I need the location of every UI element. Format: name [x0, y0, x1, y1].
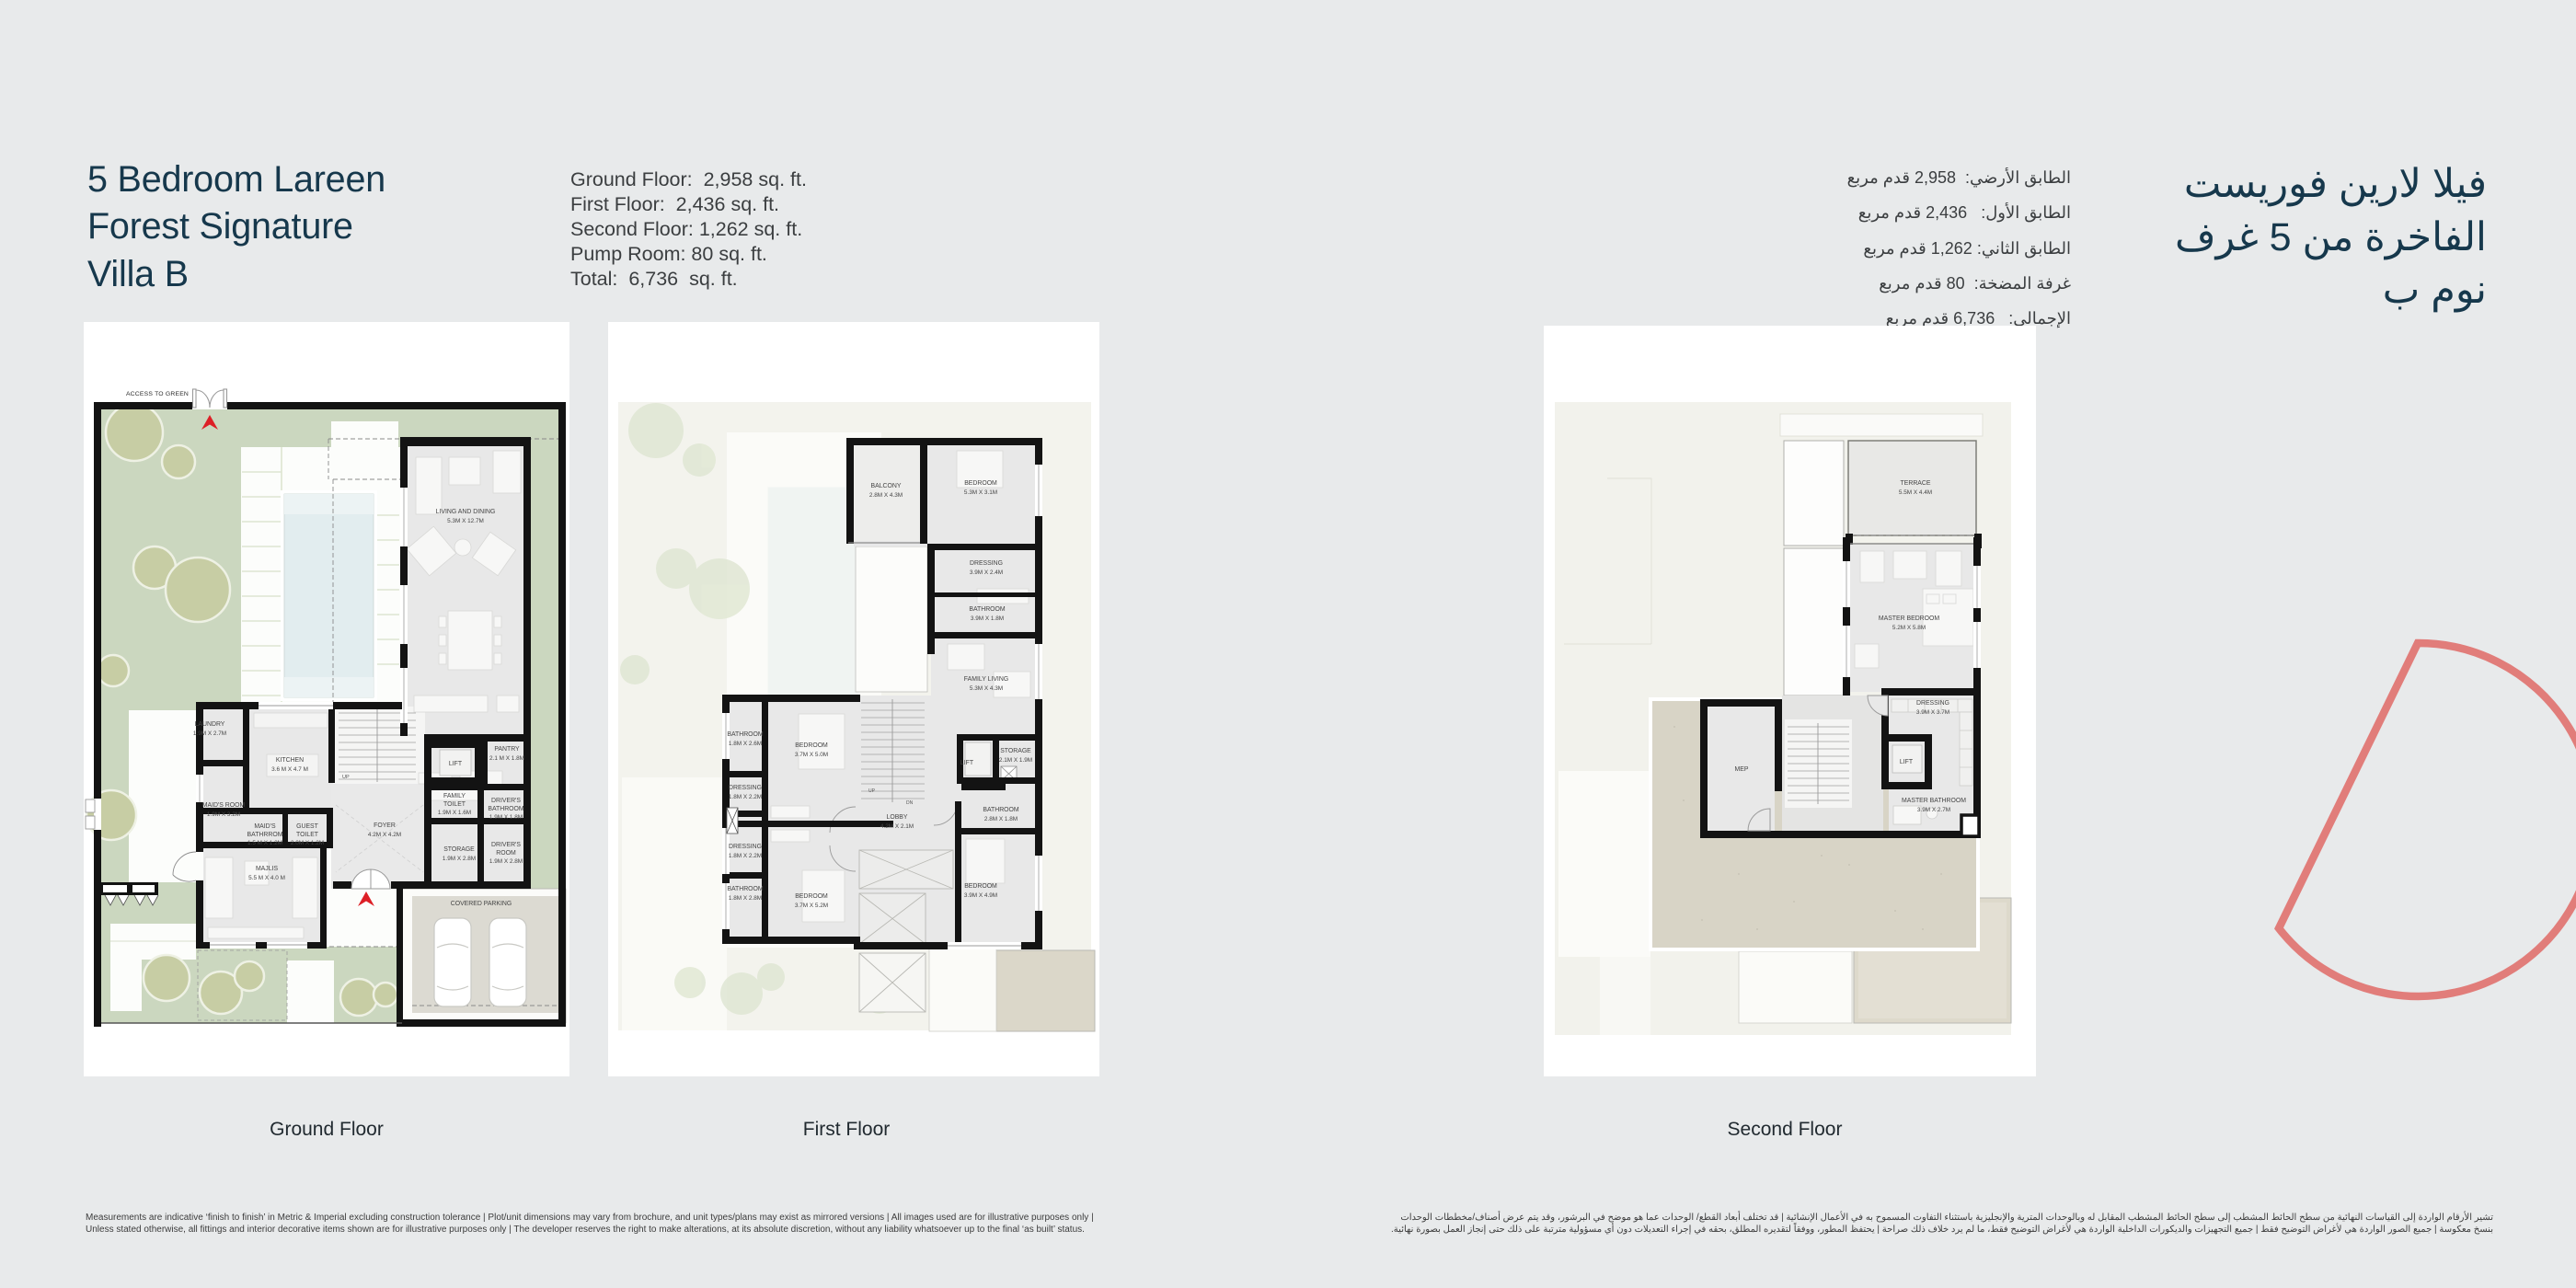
svg-text:LIFT: LIFT: [1900, 759, 1914, 765]
svg-text:GUEST: GUEST: [296, 823, 319, 830]
svg-text:1.9M X 2.8M: 1.9M X 2.8M: [489, 858, 523, 865]
svg-text:BATHROOM: BATHROOM: [969, 606, 1006, 613]
svg-text:DRESSING: DRESSING: [1916, 700, 1949, 707]
svg-text:4.2M X 4.2M: 4.2M X 4.2M: [368, 832, 401, 838]
svg-text:3.9M X 4.9M: 3.9M X 4.9M: [964, 892, 997, 899]
svg-text:DN: DN: [906, 800, 914, 806]
svg-text:DRESSING: DRESSING: [729, 844, 762, 850]
svg-text:1.9M X 1.8M: 1.9M X 1.8M: [489, 814, 523, 821]
svg-text:UP: UP: [342, 775, 350, 780]
svg-text:MAID'S ROOM: MAID'S ROOM: [202, 802, 246, 809]
svg-text:BEDROOM: BEDROOM: [795, 893, 828, 900]
svg-text:MASTER BATHROOM: MASTER BATHROOM: [1902, 798, 1966, 804]
svg-text:COVERED PARKING: COVERED PARKING: [451, 901, 512, 907]
svg-text:4.2M X 2.1M: 4.2M X 2.1M: [880, 823, 914, 830]
svg-text:5.2M X 5.8M: 5.2M X 5.8M: [1892, 625, 1926, 631]
svg-text:PANTRY: PANTRY: [494, 746, 520, 753]
svg-text:5.3M X 4.3M: 5.3M X 4.3M: [970, 685, 1003, 692]
svg-text:FAMILY: FAMILY: [443, 793, 466, 799]
svg-text:TOILET: TOILET: [296, 832, 319, 838]
svg-text:MASTER BEDROOM: MASTER BEDROOM: [1879, 615, 1939, 622]
svg-text:2.8M X 1.8M: 2.8M X 1.8M: [984, 816, 1018, 822]
svg-text:BATHROOM: BATHROOM: [727, 731, 764, 738]
svg-text:3.9M X 1.8M: 3.9M X 1.8M: [971, 615, 1004, 622]
svg-text:LIVING AND DINING: LIVING AND DINING: [436, 509, 496, 515]
svg-text:MAJLIS: MAJLIS: [256, 866, 279, 872]
svg-text:TERRACE: TERRACE: [1901, 480, 1931, 487]
svg-text:KITCHEN: KITCHEN: [276, 757, 304, 764]
svg-text:DRIVER'S: DRIVER'S: [491, 842, 521, 848]
svg-text:MEP: MEP: [1735, 766, 1749, 773]
svg-text:1.9M X 2.7M: 1.9M X 2.7M: [193, 730, 226, 737]
svg-text:1.8M X 2.8M: 1.8M X 2.8M: [729, 895, 762, 902]
svg-text:3.7M X 5.0M: 3.7M X 5.0M: [795, 752, 828, 758]
svg-text:3.7M X 5.2M: 3.7M X 5.2M: [795, 903, 828, 909]
svg-text:DRESSING: DRESSING: [729, 785, 762, 791]
svg-text:2.8M X 4.3M: 2.8M X 4.3M: [869, 492, 903, 499]
svg-text:BEDROOM: BEDROOM: [964, 883, 997, 890]
svg-text:STORAGE: STORAGE: [1000, 748, 1031, 754]
svg-text:1.8M X 2.2M: 1.8M X 2.2M: [729, 794, 762, 800]
svg-text:LIFT: LIFT: [960, 760, 974, 766]
svg-text:5.5 M X 4.0 M: 5.5 M X 4.0 M: [248, 875, 285, 881]
svg-text:DRIVER'S: DRIVER'S: [491, 798, 521, 804]
svg-text:BALCONY: BALCONY: [871, 483, 902, 489]
svg-text:TOILET: TOILET: [443, 801, 466, 808]
svg-text:LOBBY: LOBBY: [887, 814, 908, 821]
svg-text:3.9M X 2.7M: 3.9M X 2.7M: [1917, 807, 1950, 813]
svg-text:STORAGE: STORAGE: [443, 846, 475, 853]
svg-text:1.8M X 2.6M: 1.8M X 2.6M: [729, 741, 762, 747]
svg-text:FAMILY LIVING: FAMILY LIVING: [964, 676, 1008, 683]
svg-text:UP: UP: [868, 788, 876, 794]
svg-text:LIFT: LIFT: [449, 761, 463, 767]
svg-text:BEDROOM: BEDROOM: [964, 480, 997, 487]
svg-text:FOYER: FOYER: [374, 822, 396, 829]
svg-text:5.3M X 3.1M: 5.3M X 3.1M: [964, 489, 997, 496]
svg-text:BATHROOM: BATHROOM: [488, 806, 524, 812]
svg-text:ROOM: ROOM: [496, 850, 516, 857]
svg-text:BATHRROM: BATHRROM: [247, 832, 283, 838]
svg-text:3.6 M X 4.7 M: 3.6 M X 4.7 M: [271, 766, 308, 773]
svg-text:1.9M X 2.8M: 1.9M X 2.8M: [443, 856, 476, 862]
svg-text:5.5M X 4.4M: 5.5M X 4.4M: [1899, 489, 1932, 496]
svg-text:1.9M X 3.2M: 1.9M X 3.2M: [207, 811, 240, 818]
svg-text:LAUNDRY: LAUNDRY: [195, 721, 225, 728]
svg-text:MAID'S: MAID'S: [254, 823, 276, 830]
svg-text:3.9M X 2.4M: 3.9M X 2.4M: [970, 569, 1003, 576]
svg-text:DRESSING: DRESSING: [970, 560, 1003, 567]
svg-text:BATHROOM: BATHROOM: [983, 807, 1019, 813]
svg-text:5.3M X 12.7M: 5.3M X 12.7M: [447, 518, 484, 524]
svg-text:3.9M X 3.7M: 3.9M X 3.7M: [1916, 709, 1949, 716]
svg-text:1.9M X 1.6M: 1.9M X 1.6M: [438, 810, 471, 816]
svg-text:2.1 M X 1.8M: 2.1 M X 1.8M: [489, 755, 524, 762]
svg-text:2.1M X 1.9M: 2.1M X 1.9M: [999, 757, 1032, 764]
svg-text:1.8M X 2.2M: 1.8M X 2.2M: [729, 853, 762, 859]
svg-text:BEDROOM: BEDROOM: [795, 742, 828, 749]
svg-text:1.5 M X 1.2M: 1.5 M X 1.2M: [247, 840, 282, 846]
svg-text:2.0M X 1.2M: 2.0M X 1.2M: [291, 840, 324, 846]
svg-text:BATHROOM: BATHROOM: [727, 886, 764, 892]
svg-text:ACCESS TO GREEN: ACCESS TO GREEN: [126, 391, 189, 397]
